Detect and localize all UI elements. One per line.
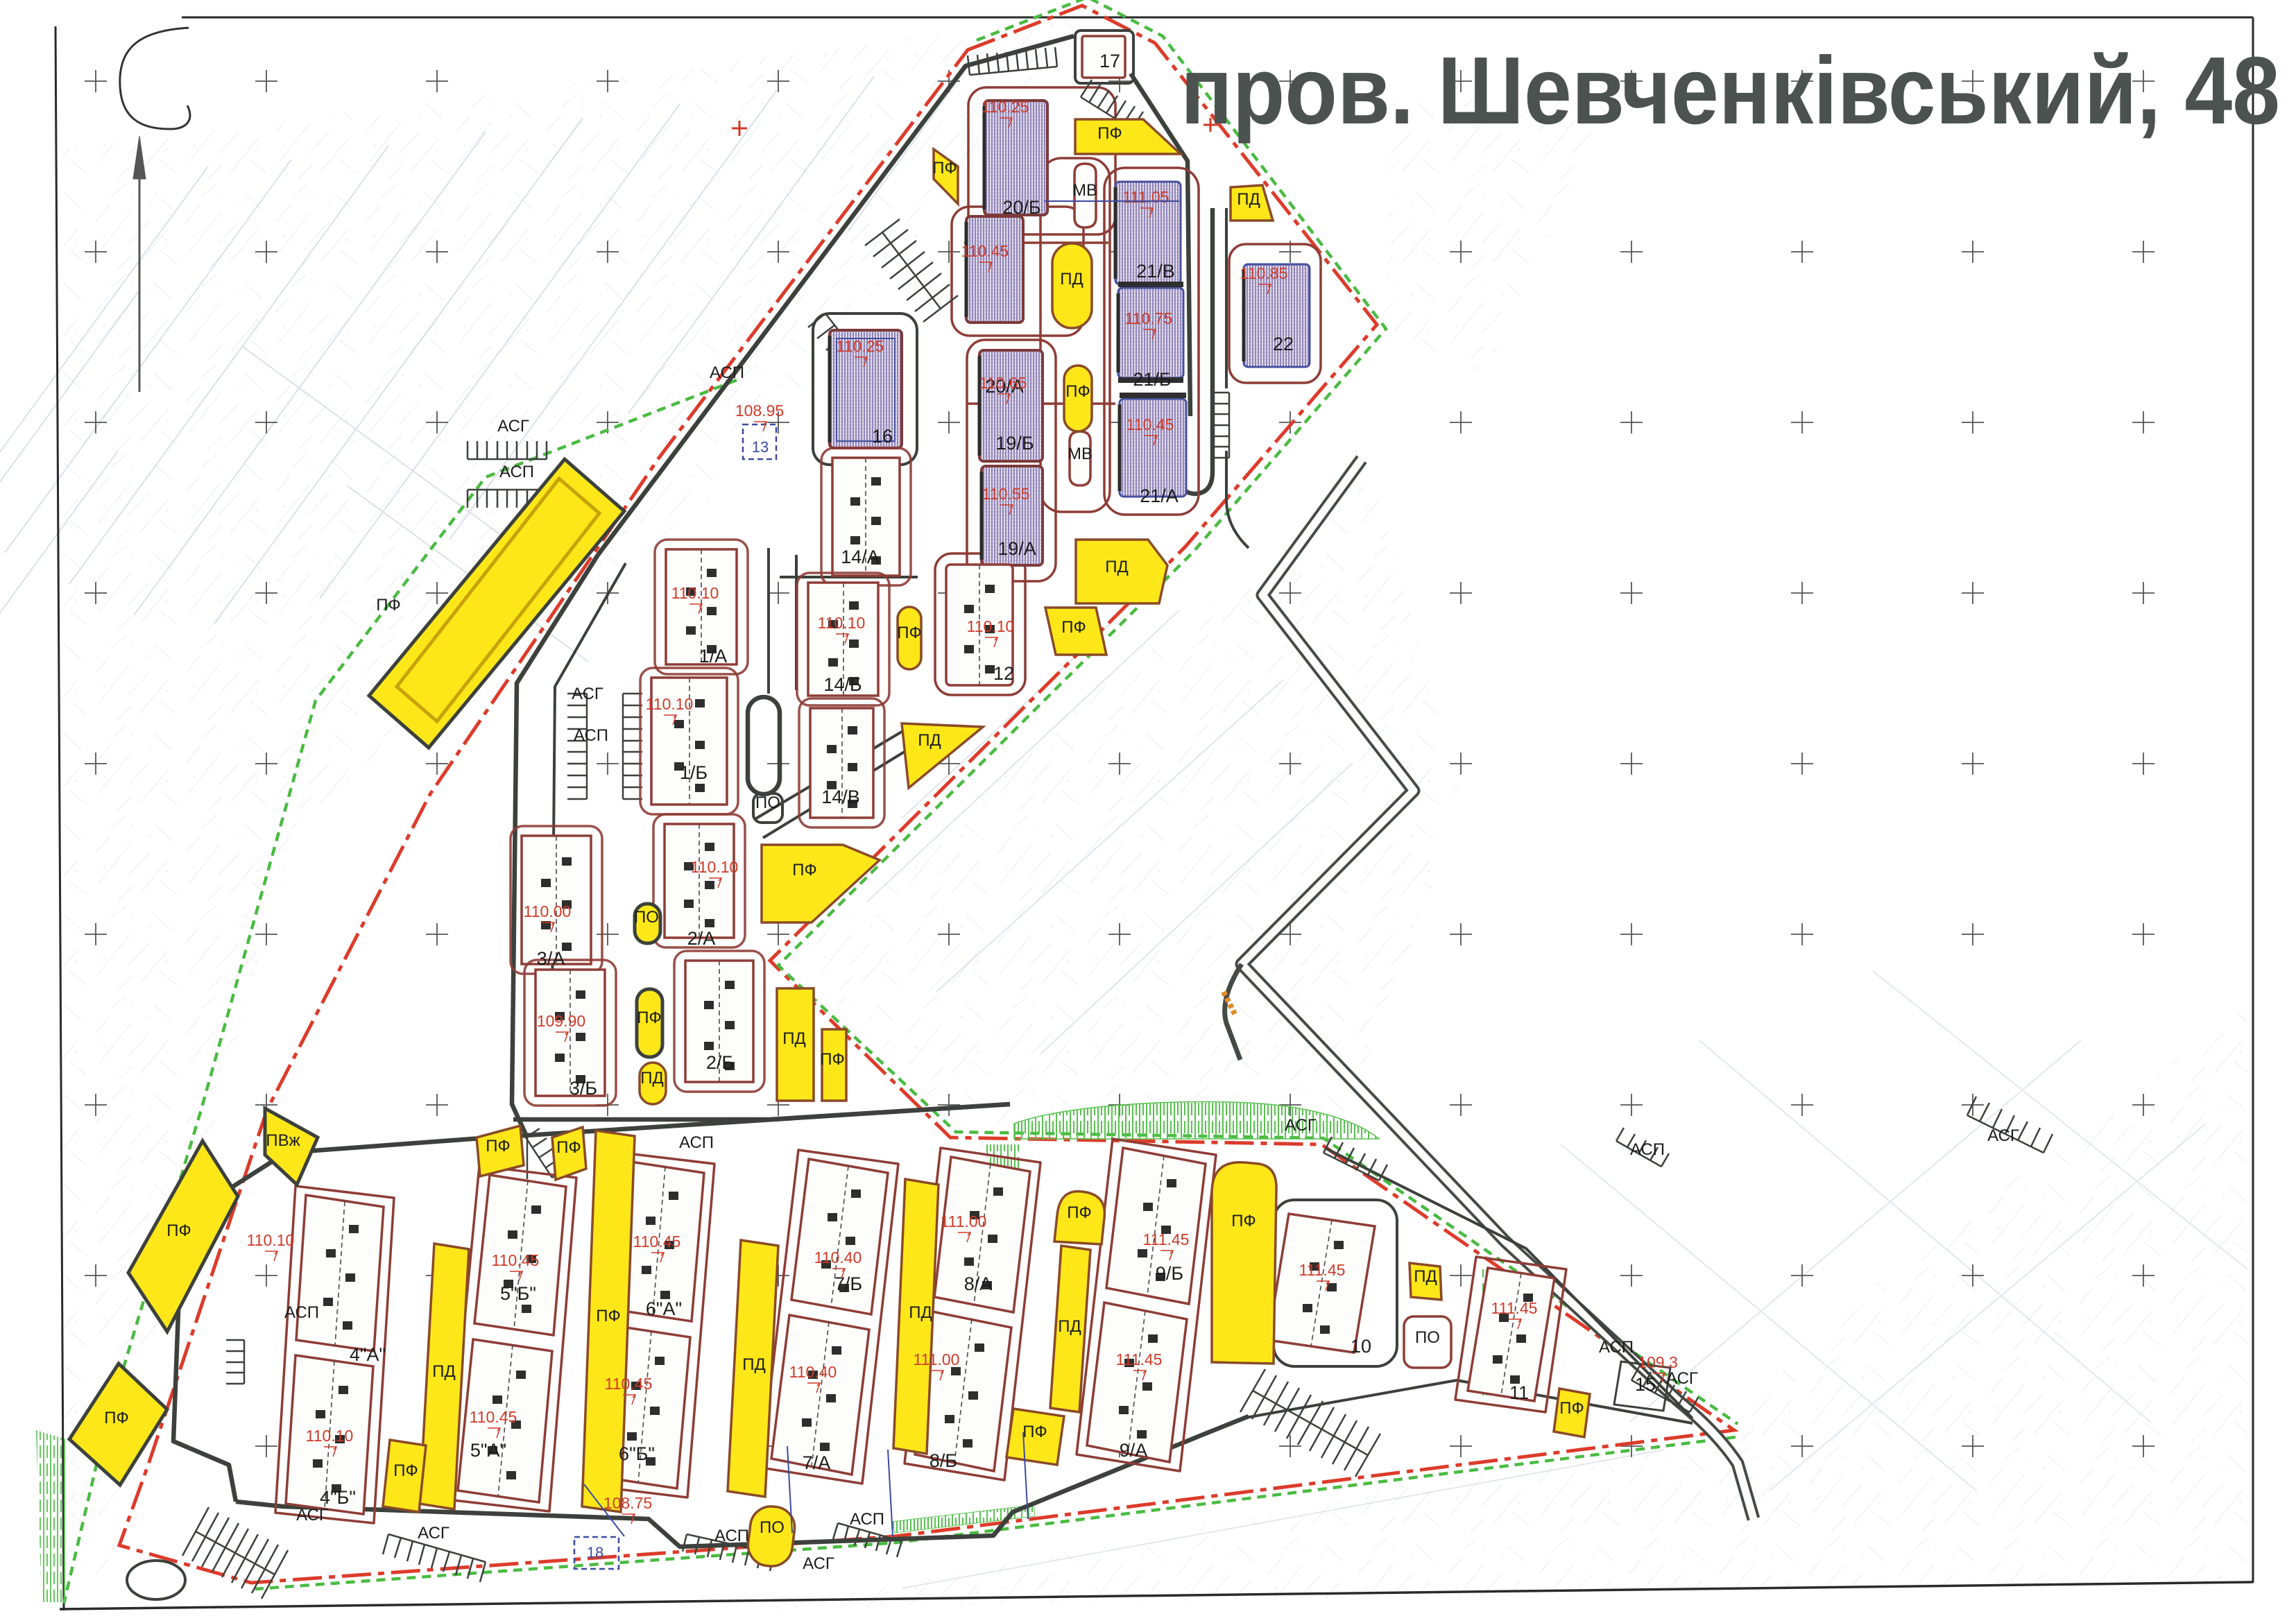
svg-text:110.45: 110.45 bbox=[492, 1251, 540, 1269]
svg-text:110.65: 110.65 bbox=[979, 374, 1027, 392]
svg-text:АСП: АСП bbox=[1599, 1338, 1634, 1357]
svg-text:2/Б: 2/Б bbox=[706, 1052, 734, 1073]
svg-text:ПО: ПО bbox=[634, 908, 659, 927]
svg-text:10: 10 bbox=[1351, 1336, 1371, 1357]
svg-text:3/Б: 3/Б bbox=[569, 1078, 597, 1099]
svg-text:ПФ: ПФ bbox=[1559, 1399, 1584, 1418]
svg-text:110.45: 110.45 bbox=[961, 242, 1009, 260]
svg-text:ПО: ПО bbox=[760, 1518, 785, 1537]
svg-text:111.00: 111.00 bbox=[941, 1212, 987, 1230]
svg-text:16: 16 bbox=[872, 426, 893, 447]
svg-text:13: 13 bbox=[752, 438, 769, 456]
svg-text:110.75: 110.75 bbox=[1125, 309, 1173, 327]
svg-text:110.45: 110.45 bbox=[605, 1375, 653, 1393]
svg-text:ПФ: ПФ bbox=[792, 861, 817, 879]
svg-text:АСГ: АСГ bbox=[1666, 1369, 1698, 1388]
svg-text:14/Б: 14/Б bbox=[823, 674, 862, 695]
svg-text:19/Б: 19/Б bbox=[995, 433, 1034, 454]
svg-text:2/А: 2/А bbox=[687, 928, 716, 949]
svg-text:18: 18 bbox=[587, 1544, 603, 1561]
svg-text:110.10: 110.10 bbox=[691, 858, 739, 876]
svg-text:АСГ: АСГ bbox=[497, 417, 529, 436]
svg-text:14/А: 14/А bbox=[841, 547, 880, 567]
svg-text:ПО: ПО bbox=[755, 793, 780, 812]
svg-text:5"А": 5"А" bbox=[470, 1440, 506, 1461]
svg-text:ПФ: ПФ bbox=[637, 1008, 662, 1027]
svg-text:ПД: ПД bbox=[909, 1303, 932, 1322]
svg-text:АСП: АСП bbox=[499, 463, 534, 481]
svg-text:21/В: 21/В bbox=[1136, 261, 1175, 282]
svg-text:110.10: 110.10 bbox=[646, 695, 694, 713]
svg-text:ПФ: ПФ bbox=[1061, 618, 1086, 637]
svg-text:МВ: МВ bbox=[1072, 181, 1097, 200]
svg-text:ПД: ПД bbox=[1060, 270, 1083, 289]
svg-text:ПФ: ПФ bbox=[1231, 1212, 1256, 1230]
svg-text:ПД: ПД bbox=[782, 1029, 806, 1048]
svg-text:110.45: 110.45 bbox=[633, 1233, 681, 1251]
svg-text:110.85: 110.85 bbox=[1240, 264, 1288, 282]
svg-text:8/А: 8/А bbox=[964, 1273, 993, 1294]
svg-text:1/А: 1/А bbox=[699, 646, 728, 667]
svg-text:АСГ: АСГ bbox=[418, 1524, 449, 1543]
svg-text:ПФ: ПФ bbox=[932, 159, 957, 178]
svg-text:ПФ: ПФ bbox=[104, 1409, 129, 1427]
svg-text:АСГ: АСГ bbox=[1987, 1126, 2019, 1145]
svg-text:ПФ: ПФ bbox=[486, 1137, 511, 1156]
svg-text:111.45: 111.45 bbox=[1491, 1299, 1538, 1317]
svg-text:110.00: 110.00 bbox=[524, 902, 572, 920]
svg-text:9/А: 9/А bbox=[1120, 1440, 1148, 1461]
svg-text:111.45: 111.45 bbox=[1143, 1230, 1190, 1248]
svg-text:АСП: АСП bbox=[574, 726, 608, 745]
svg-text:АСГ: АСГ bbox=[572, 685, 603, 703]
svg-text:110.55: 110.55 bbox=[982, 485, 1030, 503]
svg-text:ПД: ПД bbox=[640, 1069, 664, 1088]
svg-text:110.25: 110.25 bbox=[982, 98, 1029, 116]
svg-text:21/Б: 21/Б bbox=[1133, 369, 1171, 390]
svg-text:109.3: 109.3 bbox=[1638, 1353, 1678, 1371]
svg-text:110.10: 110.10 bbox=[306, 1427, 354, 1445]
svg-text:110.10: 110.10 bbox=[818, 614, 866, 632]
svg-text:15: 15 bbox=[1635, 1374, 1656, 1395]
svg-text:ПФ: ПФ bbox=[1022, 1423, 1047, 1441]
svg-text:12: 12 bbox=[993, 663, 1014, 684]
svg-text:ПФ: ПФ bbox=[166, 1221, 191, 1240]
svg-text:111.05: 111.05 bbox=[1123, 188, 1170, 206]
svg-text:7/Б: 7/Б bbox=[834, 1273, 862, 1294]
svg-text:110.25: 110.25 bbox=[837, 337, 884, 355]
svg-text:ПД: ПД bbox=[918, 731, 941, 750]
svg-text:110.10: 110.10 bbox=[671, 584, 719, 602]
svg-text:19/А: 19/А bbox=[997, 538, 1036, 559]
svg-text:9/Б: 9/Б bbox=[1156, 1263, 1183, 1284]
svg-text:6"А": 6"А" bbox=[646, 1298, 682, 1319]
svg-text:ПД: ПД bbox=[1058, 1317, 1081, 1336]
svg-text:108.75: 108.75 bbox=[603, 1494, 652, 1512]
svg-text:4"А": 4"А" bbox=[350, 1344, 386, 1365]
svg-text:110.45: 110.45 bbox=[1126, 415, 1174, 433]
svg-text:1/Б: 1/Б bbox=[680, 762, 708, 783]
svg-text:ПД: ПД bbox=[432, 1362, 456, 1381]
svg-text:7/А: 7/А bbox=[803, 1452, 831, 1473]
svg-text:110.45: 110.45 bbox=[470, 1408, 517, 1426]
svg-text:109.90: 109.90 bbox=[537, 1012, 585, 1030]
svg-text:110.10: 110.10 bbox=[247, 1231, 295, 1249]
svg-text:ПФ: ПФ bbox=[820, 1050, 845, 1069]
svg-text:110.40: 110.40 bbox=[814, 1248, 862, 1266]
svg-text:ПФ: ПФ bbox=[1097, 124, 1122, 143]
svg-text:АСП: АСП bbox=[850, 1510, 884, 1529]
svg-text:21/А: 21/А bbox=[1140, 486, 1179, 506]
svg-text:108.95: 108.95 bbox=[735, 402, 784, 420]
svg-text:110.40: 110.40 bbox=[789, 1363, 837, 1381]
svg-text:6"Б": 6"Б" bbox=[619, 1443, 655, 1464]
svg-text:ПФ: ПФ bbox=[897, 624, 922, 642]
svg-text:АСП: АСП bbox=[1630, 1140, 1665, 1159]
svg-text:110.10: 110.10 bbox=[967, 617, 1015, 635]
svg-text:22: 22 bbox=[1273, 334, 1294, 354]
svg-text:ПД: ПД bbox=[742, 1355, 766, 1374]
svg-text:5"Б": 5"Б" bbox=[500, 1283, 536, 1304]
svg-text:111.45: 111.45 bbox=[1299, 1261, 1346, 1279]
svg-text:ПФ: ПФ bbox=[556, 1138, 581, 1157]
svg-text:АСП: АСП bbox=[284, 1303, 319, 1322]
svg-text:АСП: АСП bbox=[710, 363, 744, 382]
svg-text:МВ: МВ bbox=[1068, 445, 1093, 463]
svg-text:ПФ: ПФ bbox=[596, 1307, 621, 1325]
svg-text:ПД: ПД bbox=[1105, 558, 1129, 576]
svg-text:ПВж: ПВж bbox=[266, 1131, 300, 1150]
svg-text:АСГ: АСГ bbox=[1285, 1116, 1317, 1135]
svg-text:АСП: АСП bbox=[679, 1133, 714, 1152]
svg-text:пров. Шевченківський, 48: пров. Шевченківський, 48 bbox=[1181, 37, 2280, 144]
svg-text:ПФ: ПФ bbox=[1065, 382, 1090, 401]
svg-text:111.00: 111.00 bbox=[914, 1350, 960, 1368]
svg-text:ПД: ПД bbox=[1414, 1267, 1437, 1286]
svg-text:АСГ: АСГ bbox=[803, 1554, 834, 1573]
svg-text:3/А: 3/А bbox=[537, 948, 565, 969]
svg-text:17: 17 bbox=[1099, 51, 1120, 71]
svg-text:АСП: АСП bbox=[714, 1527, 749, 1545]
svg-text:ПД: ПД bbox=[1237, 190, 1260, 209]
svg-text:11: 11 bbox=[1509, 1382, 1529, 1403]
svg-text:20/Б: 20/Б bbox=[1002, 197, 1040, 218]
svg-text:4"Б": 4"Б" bbox=[320, 1487, 356, 1508]
svg-text:ПФ: ПФ bbox=[376, 596, 401, 615]
svg-text:111.45: 111.45 bbox=[1116, 1350, 1163, 1368]
svg-text:АСГ: АСГ bbox=[296, 1506, 328, 1525]
svg-text:ПО: ПО bbox=[1415, 1328, 1440, 1347]
svg-text:ПФ: ПФ bbox=[393, 1461, 418, 1480]
svg-text:8/Б: 8/Б bbox=[929, 1450, 957, 1471]
svg-text:14/В: 14/В bbox=[821, 787, 860, 807]
svg-text:ПФ: ПФ bbox=[1067, 1203, 1092, 1222]
